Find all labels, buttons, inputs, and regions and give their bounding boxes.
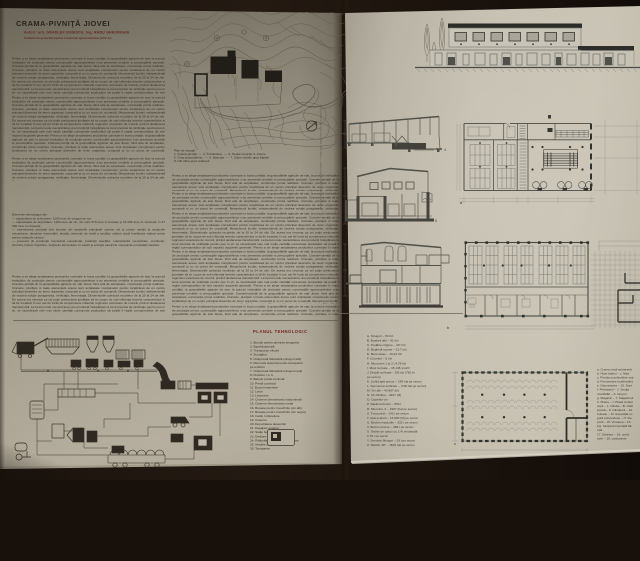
svg-text:5: 5	[435, 219, 437, 223]
svg-text:4: 4	[444, 148, 446, 152]
